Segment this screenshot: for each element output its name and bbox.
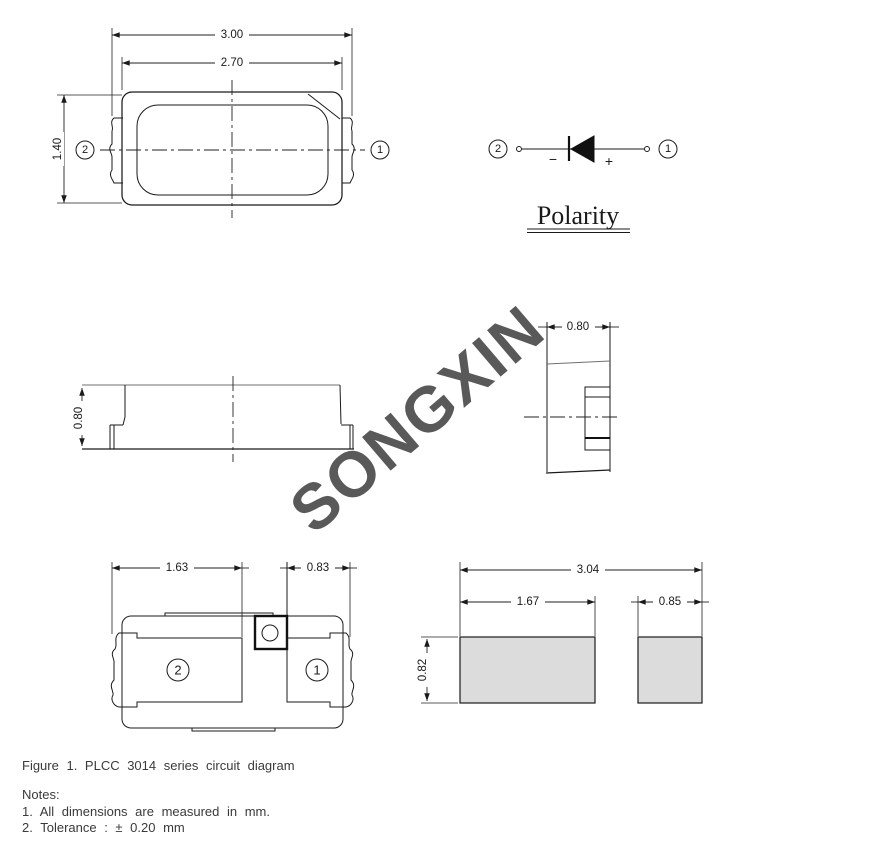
terminal-left: [517, 147, 522, 152]
dim-label-3-04: 3.04: [577, 564, 600, 576]
dim-label-3-00: 3.00: [221, 29, 243, 41]
svg-text:2: 2: [82, 144, 88, 156]
lead-left: [110, 118, 123, 183]
dim-label-1-67: 1.67: [517, 596, 539, 608]
cathode-mark: [255, 616, 287, 649]
polarity-pin-1: 1: [659, 140, 677, 158]
dim-label-side-0-80: 0.80: [73, 407, 85, 429]
figure-caption: Figure 1. PLCC 3014 series circuit diagr…: [22, 758, 295, 773]
dim-label-2-70: 2.70: [221, 57, 243, 69]
dim-label-0-85: 0.85: [659, 596, 681, 608]
side-left-profile: [110, 385, 125, 449]
dim-label-1-40: 1.40: [52, 138, 64, 160]
note-2: 2. Tolerance : ± 0.20 mm: [22, 820, 185, 835]
solder-pad-1: [638, 637, 702, 703]
bottom-pin-2: 2: [167, 659, 189, 681]
svg-text:1: 1: [377, 144, 383, 156]
top-view: 3.00 2.70 1.40 2: [52, 28, 389, 218]
bottom-view: 1.63 0.83 2 1: [111, 562, 357, 731]
end-view-dim-width: 0.80: [538, 321, 619, 333]
polarity-view: 2 1 − + Polarity: [489, 136, 677, 233]
polarity-title: Polarity: [537, 201, 619, 230]
end-top-face: [547, 361, 610, 364]
solder-pad-2: [460, 637, 595, 703]
side-view-dim-height: 0.80: [73, 388, 85, 446]
notes-title: Notes:: [22, 787, 60, 802]
dim-label-0-83: 0.83: [307, 562, 329, 574]
dim-label-1-63: 1.63: [166, 562, 188, 574]
end-bottom-edge: [546, 470, 610, 473]
minus-sign: −: [549, 151, 557, 167]
bottom-view-dim-pad2: 1.63: [112, 562, 249, 637]
circuit-diagram: SONGXIN 3.00 2.70 1.40: [0, 0, 869, 847]
pad-layout: 3.04 1.67 0.85 0.82: [417, 562, 709, 703]
polarity-pin-2: 2: [489, 140, 507, 158]
svg-text:1: 1: [313, 663, 320, 678]
pin-1-callout: 1: [371, 141, 389, 159]
lead-right: [342, 118, 354, 183]
top-view-dim-outer: 3.00: [112, 28, 352, 116]
diode-icon: [569, 136, 594, 162]
pad-layout-dim-height: 0.82: [417, 637, 458, 703]
bottom-view-dim-pad1: 0.83: [280, 562, 357, 637]
dim-label-end-0-80: 0.80: [567, 321, 589, 333]
watermark-text: SONGXIN: [276, 291, 558, 547]
pad-layout-dim-pad1: 0.85: [631, 596, 709, 636]
svg-text:1: 1: [665, 143, 671, 155]
bottom-pin-1: 1: [306, 659, 328, 681]
svg-text:2: 2: [495, 143, 501, 155]
cathode-chamfer-mark: [308, 94, 340, 119]
datasheet-page: SONGXIN 3.00 2.70 1.40: [0, 0, 869, 847]
terminal-right: [645, 147, 650, 152]
plus-sign: +: [605, 153, 613, 169]
note-1: 1. All dimensions are measured in mm.: [22, 804, 270, 819]
bottom-body-outline: [122, 616, 343, 728]
dim-label-0-82: 0.82: [417, 659, 429, 681]
svg-text:2: 2: [174, 663, 181, 678]
end-lead: [585, 387, 610, 450]
pad-layout-dim-pad2: 1.67: [460, 596, 595, 636]
side-view: 0.80: [73, 376, 354, 462]
pin-2-callout: 2: [76, 141, 94, 159]
